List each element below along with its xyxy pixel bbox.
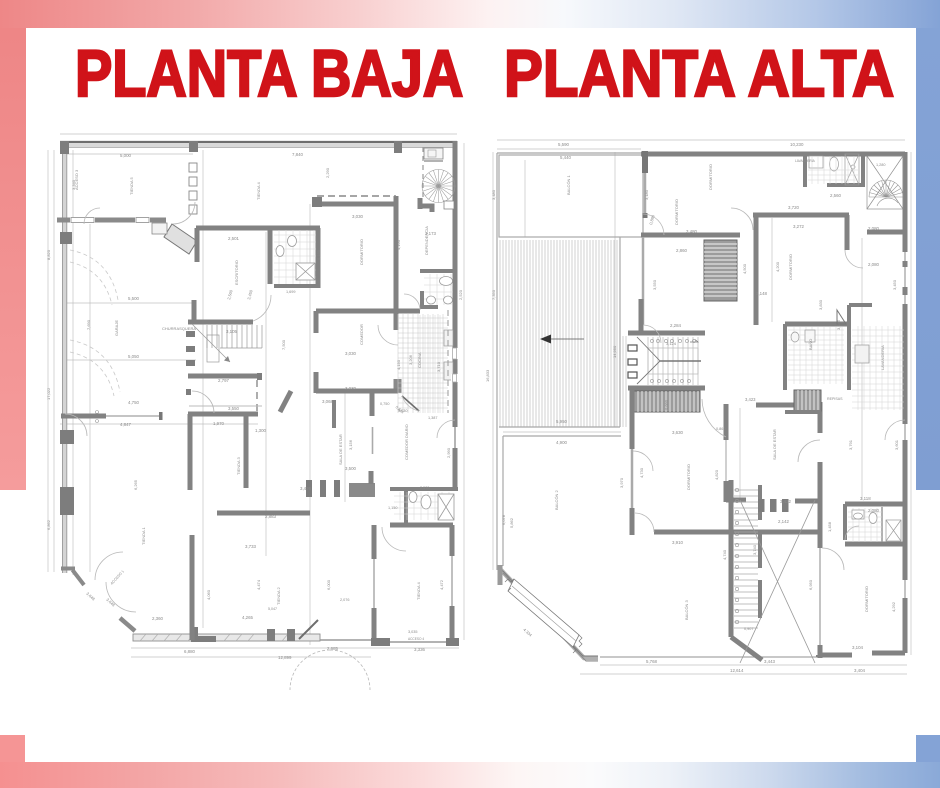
svg-text:3,436: 3,436: [300, 486, 312, 491]
svg-text:3,422: 3,422: [780, 499, 792, 504]
svg-text:4,820: 4,820: [714, 469, 719, 480]
svg-text:2,520: 2,520: [458, 289, 463, 300]
svg-text:DORMITORIO: DORMITORIO: [674, 199, 679, 225]
svg-text:3,272: 3,272: [793, 224, 805, 229]
svg-text:3,480: 3,480: [686, 229, 698, 234]
svg-text:3,740: 3,740: [752, 544, 757, 555]
svg-text:7,690: 7,690: [86, 319, 91, 330]
svg-text:1,150: 1,150: [388, 506, 398, 510]
svg-text:4,750: 4,750: [128, 400, 140, 405]
svg-text:3,500: 3,500: [345, 466, 357, 471]
svg-text:BALCÓN 2: BALCÓN 2: [554, 489, 559, 510]
svg-text:1,387: 1,387: [428, 416, 438, 420]
svg-text:4,472: 4,472: [439, 579, 444, 590]
svg-text:5,950: 5,950: [556, 419, 568, 424]
svg-text:0,907: 0,907: [744, 627, 754, 631]
svg-text:4,474: 4,474: [256, 579, 261, 590]
svg-text:1,458: 1,458: [827, 521, 832, 532]
svg-text:2,560: 2,560: [830, 193, 842, 198]
svg-text:0,860: 0,860: [716, 427, 726, 431]
svg-text:LAVANDERIA: LAVANDERIA: [880, 345, 885, 370]
svg-text:SALA DE ESTAR: SALA DE ESTAR: [338, 434, 343, 465]
svg-text:0,150: 0,150: [316, 249, 321, 260]
svg-text:3,145: 3,145: [836, 319, 841, 330]
svg-text:3,030: 3,030: [352, 214, 364, 219]
svg-text:2,797: 2,797: [218, 378, 230, 383]
svg-text:3,340: 3,340: [71, 179, 76, 190]
svg-text:10,230: 10,230: [790, 142, 804, 147]
svg-text:3,450: 3,450: [892, 279, 897, 290]
svg-text:5,000: 5,000: [120, 153, 132, 158]
svg-text:12,899: 12,899: [278, 655, 292, 660]
svg-text:2,570: 2,570: [420, 486, 430, 490]
svg-text:6,078: 6,078: [501, 514, 506, 525]
svg-text:5,768: 5,768: [646, 659, 658, 664]
svg-text:4,150: 4,150: [396, 359, 401, 370]
svg-text:2,080: 2,080: [868, 508, 880, 513]
svg-text:6,950: 6,950: [808, 579, 813, 590]
svg-text:7,500: 7,500: [281, 339, 286, 350]
svg-text:4,265: 4,265: [242, 615, 254, 620]
svg-text:3,030: 3,030: [345, 386, 357, 391]
svg-text:3,035: 3,035: [408, 630, 418, 634]
svg-text:3,791: 3,791: [848, 439, 853, 450]
svg-text:5,047: 5,047: [268, 607, 277, 611]
svg-text:2,860: 2,860: [676, 248, 688, 253]
svg-text:3,124: 3,124: [666, 341, 677, 346]
svg-text:TIENDA 3: TIENDA 3: [236, 456, 241, 475]
svg-text:COMEDOR: COMEDOR: [359, 324, 364, 345]
svg-text:ESCRITORIO: ESCRITORIO: [234, 260, 239, 285]
svg-text:DORMITORIO: DORMITORIO: [864, 586, 869, 612]
svg-text:2,080: 2,080: [868, 262, 880, 267]
svg-text:3,733: 3,733: [245, 544, 257, 549]
svg-text:TIENDA 1: TIENDA 1: [141, 526, 146, 545]
svg-text:DORMITORIO: DORMITORIO: [788, 254, 793, 280]
svg-text:8,820: 8,820: [46, 249, 51, 260]
svg-text:4,730: 4,730: [639, 467, 644, 478]
svg-text:3,480: 3,480: [491, 189, 496, 200]
svg-text:6,862: 6,862: [46, 519, 51, 530]
svg-text:12,614: 12,614: [730, 668, 744, 673]
svg-text:LAVANDERIA: LAVANDERIA: [795, 159, 816, 163]
svg-text:3,104: 3,104: [852, 645, 864, 650]
svg-text:3,423: 3,423: [745, 397, 756, 402]
svg-text:3,450: 3,450: [246, 289, 254, 301]
svg-text:7,350: 7,350: [491, 289, 496, 300]
svg-text:4,847: 4,847: [120, 422, 132, 427]
svg-text:DEPENDENCIA: DEPENDENCIA: [424, 226, 429, 255]
svg-text:2,080: 2,080: [868, 226, 880, 231]
svg-text:3,404: 3,404: [854, 668, 866, 673]
svg-text:3,970: 3,970: [619, 477, 624, 488]
svg-text:2,501: 2,501: [228, 236, 240, 241]
svg-text:ACCESO 1: ACCESO 1: [110, 569, 125, 585]
svg-text:1,699: 1,699: [286, 290, 296, 294]
svg-text:GARAJE: GARAJE: [114, 320, 119, 336]
svg-text:BALCÓN 1: BALCÓN 1: [566, 174, 571, 195]
svg-text:0,880: 0,880: [664, 399, 669, 410]
svg-text:5,500: 5,500: [128, 296, 140, 301]
svg-text:ACCESO 4: ACCESO 4: [408, 637, 424, 641]
svg-text:6,265: 6,265: [133, 479, 138, 490]
svg-text:4,200: 4,200: [775, 261, 780, 272]
svg-text:TIENDA 5: TIENDA 5: [129, 176, 134, 195]
svg-text:4,900: 4,900: [556, 440, 568, 445]
svg-text:REPISAS: REPISAS: [827, 397, 843, 401]
svg-text:3,156: 3,156: [348, 439, 353, 450]
svg-text:4,160: 4,160: [396, 239, 401, 250]
svg-text:4,500: 4,500: [742, 263, 747, 274]
svg-text:3,105: 3,105: [226, 329, 238, 334]
svg-text:3,443: 3,443: [764, 659, 776, 664]
svg-text:3,068: 3,068: [322, 399, 334, 404]
svg-text:16,833: 16,833: [485, 369, 490, 382]
svg-text:2,360: 2,360: [152, 616, 164, 621]
svg-text:BALCÓN 3: BALCÓN 3: [684, 599, 689, 620]
svg-text:1,280: 1,280: [876, 163, 886, 167]
svg-text:3,648: 3,648: [85, 591, 96, 602]
svg-text:4,740: 4,740: [722, 549, 727, 560]
svg-text:DORMITORIO: DORMITORIO: [686, 464, 691, 490]
svg-text:3,720: 3,720: [788, 205, 800, 210]
svg-text:3,910: 3,910: [672, 540, 684, 545]
svg-text:TIENDA 4: TIENDA 4: [416, 581, 421, 600]
svg-text:4,334: 4,334: [522, 627, 533, 638]
svg-text:5,862: 5,862: [509, 517, 514, 528]
svg-text:COMEDOR DIARIO: COMEDOR DIARIO: [404, 424, 409, 460]
svg-text:3,630: 3,630: [672, 430, 684, 435]
svg-text:2,500: 2,500: [226, 289, 234, 301]
svg-text:3,550: 3,550: [652, 279, 657, 290]
svg-text:14,950: 14,950: [612, 345, 617, 358]
svg-text:3,550: 3,550: [228, 406, 240, 411]
svg-text:7,840: 7,840: [292, 152, 304, 157]
svg-text:3,148: 3,148: [756, 291, 768, 296]
svg-text:1,300: 1,300: [255, 428, 267, 433]
svg-text:3,601: 3,601: [894, 439, 899, 450]
svg-text:DORMITORIO: DORMITORIO: [708, 164, 713, 190]
svg-text:5,050: 5,050: [128, 354, 140, 359]
svg-text:DORMITORIO: DORMITORIO: [359, 239, 364, 265]
svg-text:SALA DE ESTAR: SALA DE ESTAR: [772, 429, 777, 460]
svg-text:TIENDA 4: TIENDA 4: [256, 181, 261, 200]
svg-text:2,883: 2,883: [265, 514, 277, 519]
svg-text:3,030: 3,030: [345, 351, 357, 356]
svg-text:4,292: 4,292: [891, 601, 896, 612]
svg-text:TIENDA 2: TIENDA 2: [276, 586, 281, 605]
svg-text:COCINA: COCINA: [417, 352, 422, 368]
svg-text:3,830: 3,830: [818, 299, 823, 310]
svg-text:5,590: 5,590: [558, 142, 570, 147]
svg-text:3,118: 3,118: [860, 496, 871, 501]
svg-text:4,060: 4,060: [206, 589, 211, 600]
svg-text:CHURRASQUERA: CHURRASQUERA: [162, 326, 196, 331]
svg-text:2,076: 2,076: [340, 598, 350, 602]
svg-text:2,290: 2,290: [325, 167, 330, 178]
svg-text:2,284: 2,284: [670, 323, 682, 328]
svg-text:2,990: 2,990: [446, 447, 451, 458]
svg-text:0,750: 0,750: [380, 402, 390, 406]
svg-text:BAÑO: BAÑO: [808, 339, 813, 350]
svg-text:17,022: 17,022: [46, 387, 51, 400]
svg-text:3,710: 3,710: [436, 361, 441, 372]
svg-text:3,206: 3,206: [408, 354, 413, 365]
svg-text:1,970: 1,970: [213, 421, 225, 426]
svg-text:5,440: 5,440: [560, 155, 572, 160]
svg-text:6,880: 6,880: [184, 649, 196, 654]
svg-text:3,180: 3,180: [644, 189, 649, 200]
svg-text:3,336: 3,336: [414, 647, 426, 652]
svg-text:6,000: 6,000: [326, 579, 331, 590]
svg-text:2,142: 2,142: [778, 519, 790, 524]
